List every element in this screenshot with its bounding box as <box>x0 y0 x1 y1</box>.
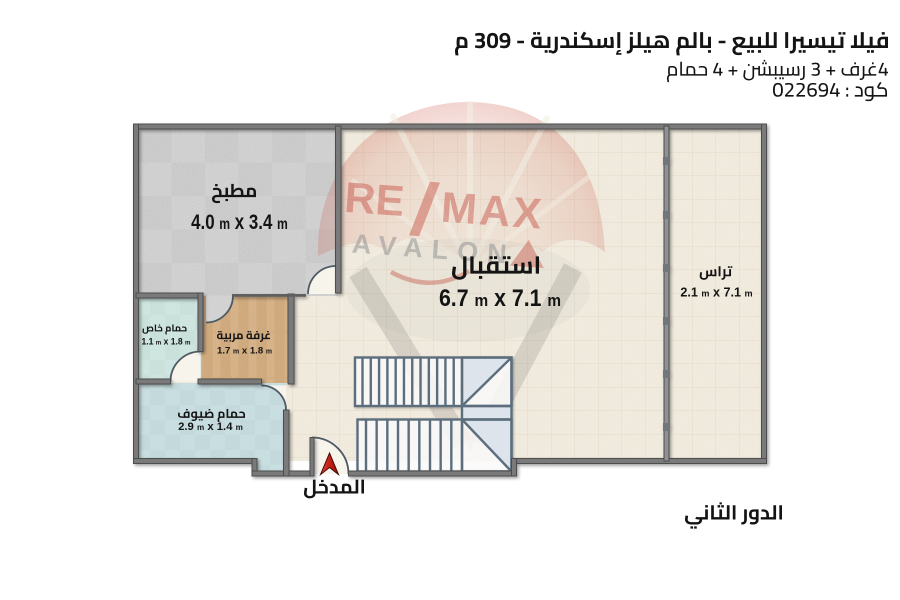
svg-text:1.7 m x 1.8 m: 1.7 m x 1.8 m <box>217 346 272 357</box>
svg-text:2.9 m x 1.4 m: 2.9 m x 1.4 m <box>178 421 243 433</box>
svg-text:6.7 m x 7.1 m: 6.7 m x 7.1 m <box>439 285 561 311</box>
svg-text:1.1 m x 1.8 m: 1.1 m x 1.8 m <box>142 336 191 346</box>
svg-text:4.0 m x 3.4 m: 4.0 m x 3.4 m <box>191 211 288 234</box>
svg-text:2.1 m x 7.1 m: 2.1 m x 7.1 m <box>680 284 752 299</box>
